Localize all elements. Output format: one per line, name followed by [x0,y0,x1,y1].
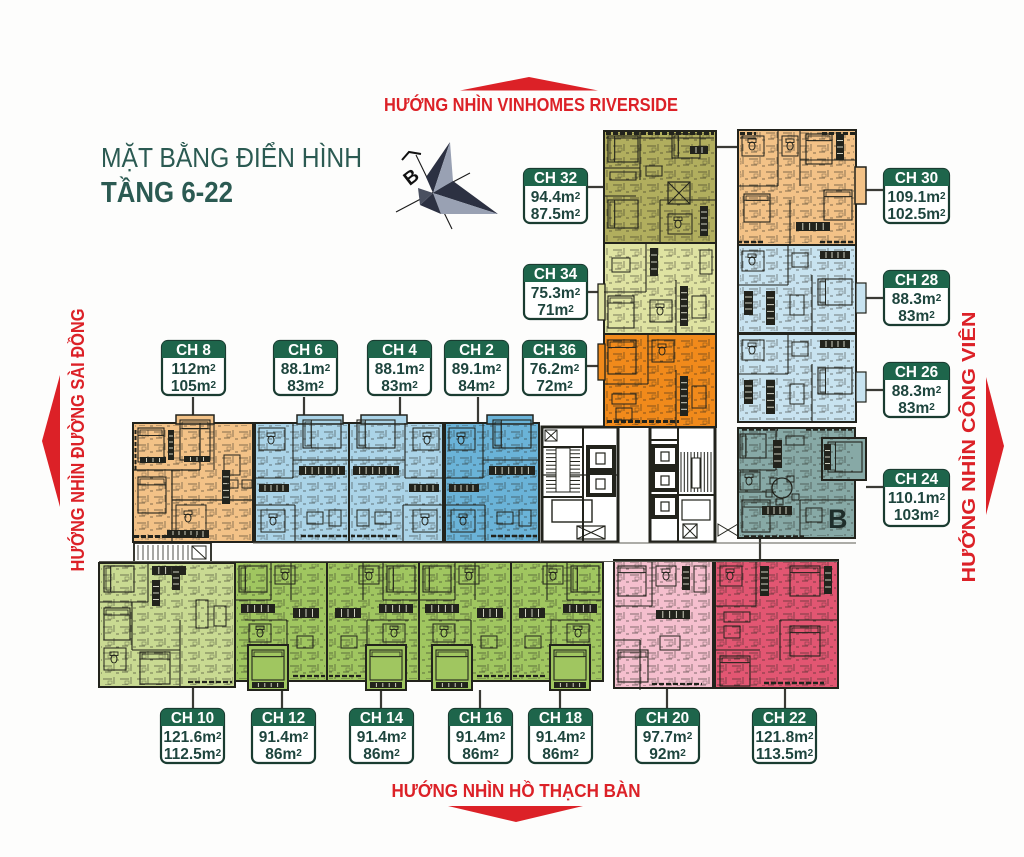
svg-text:CH 22: CH 22 [763,710,806,727]
svg-text:MẶT BẰNG ĐIỂN HÌNH: MẶT BẰNG ĐIỂN HÌNH [101,142,362,173]
svg-text:88.1m2: 88.1m2 [281,361,331,378]
svg-text:87.5m2: 87.5m2 [531,206,581,223]
svg-text:88.3m2: 88.3m2 [892,383,942,400]
svg-text:91.4m2: 91.4m2 [456,729,506,746]
svg-text:103m2: 103m2 [894,507,940,524]
svg-text:HƯỚNG NHÌN VINHOMES RIVERSIDE: HƯỚNG NHÌN VINHOMES RIVERSIDE [384,94,678,115]
svg-text:CH 30: CH 30 [895,170,938,187]
svg-text:75.3m2: 75.3m2 [531,285,581,302]
svg-text:CH 26: CH 26 [895,364,938,381]
svg-text:102.5m2: 102.5m2 [887,206,946,223]
svg-text:CH 34: CH 34 [534,266,578,283]
svg-text:121.6m2: 121.6m2 [163,729,222,746]
svg-text:CH 4: CH 4 [382,342,417,359]
svg-text:CH 28: CH 28 [895,272,939,289]
svg-text:HƯỚNG NHÌN ĐƯỜNG SÀI ĐỒNG: HƯỚNG NHÌN ĐƯỜNG SÀI ĐỒNG [67,309,88,572]
svg-text:CH 32: CH 32 [534,170,577,187]
svg-text:105m2: 105m2 [171,378,217,395]
svg-text:112m2: 112m2 [171,361,216,378]
svg-text:94.4m2: 94.4m2 [531,189,581,206]
svg-text:CH 20: CH 20 [646,710,689,727]
svg-text:91.4m2: 91.4m2 [357,729,407,746]
svg-text:CH 36: CH 36 [533,342,576,359]
svg-text:97.7m2: 97.7m2 [643,729,693,746]
svg-text:CH 16: CH 16 [459,710,502,727]
svg-text:B: B [828,504,848,534]
svg-text:88.1m2: 88.1m2 [375,361,425,378]
svg-text:109.1m2: 109.1m2 [887,189,946,206]
svg-text:76.2m2: 76.2m2 [530,361,580,378]
svg-text:121.8m2: 121.8m2 [755,729,814,746]
svg-text:91.4m2: 91.4m2 [259,729,309,746]
svg-text:CH 10: CH 10 [171,710,214,727]
svg-text:CH 14: CH 14 [360,710,404,727]
svg-text:91.4m2: 91.4m2 [536,729,586,746]
svg-text:CH 6: CH 6 [288,342,323,359]
svg-text:HƯỚNG NHÌN CÔNG VIÊN: HƯỚNG NHÌN CÔNG VIÊN [958,312,979,583]
svg-text:HƯỚNG NHÌN HỒ THẠCH BÀN: HƯỚNG NHÌN HỒ THẠCH BÀN [392,780,641,801]
svg-text:113.5m2: 113.5m2 [756,746,814,763]
svg-text:CH 2: CH 2 [459,342,494,359]
svg-text:110.1m2: 110.1m2 [888,490,946,507]
svg-text:CH 18: CH 18 [539,710,583,727]
svg-text:CH 24: CH 24 [895,471,939,488]
svg-text:88.3m2: 88.3m2 [892,291,942,308]
svg-text:B: B [400,165,424,190]
svg-text:112.5m2: 112.5m2 [164,746,222,763]
svg-text:CH 8: CH 8 [176,342,211,359]
svg-text:CH 12: CH 12 [262,710,305,727]
svg-text:89.1m2: 89.1m2 [452,361,502,378]
svg-text:TẦNG 6-22: TẦNG 6-22 [101,175,233,209]
